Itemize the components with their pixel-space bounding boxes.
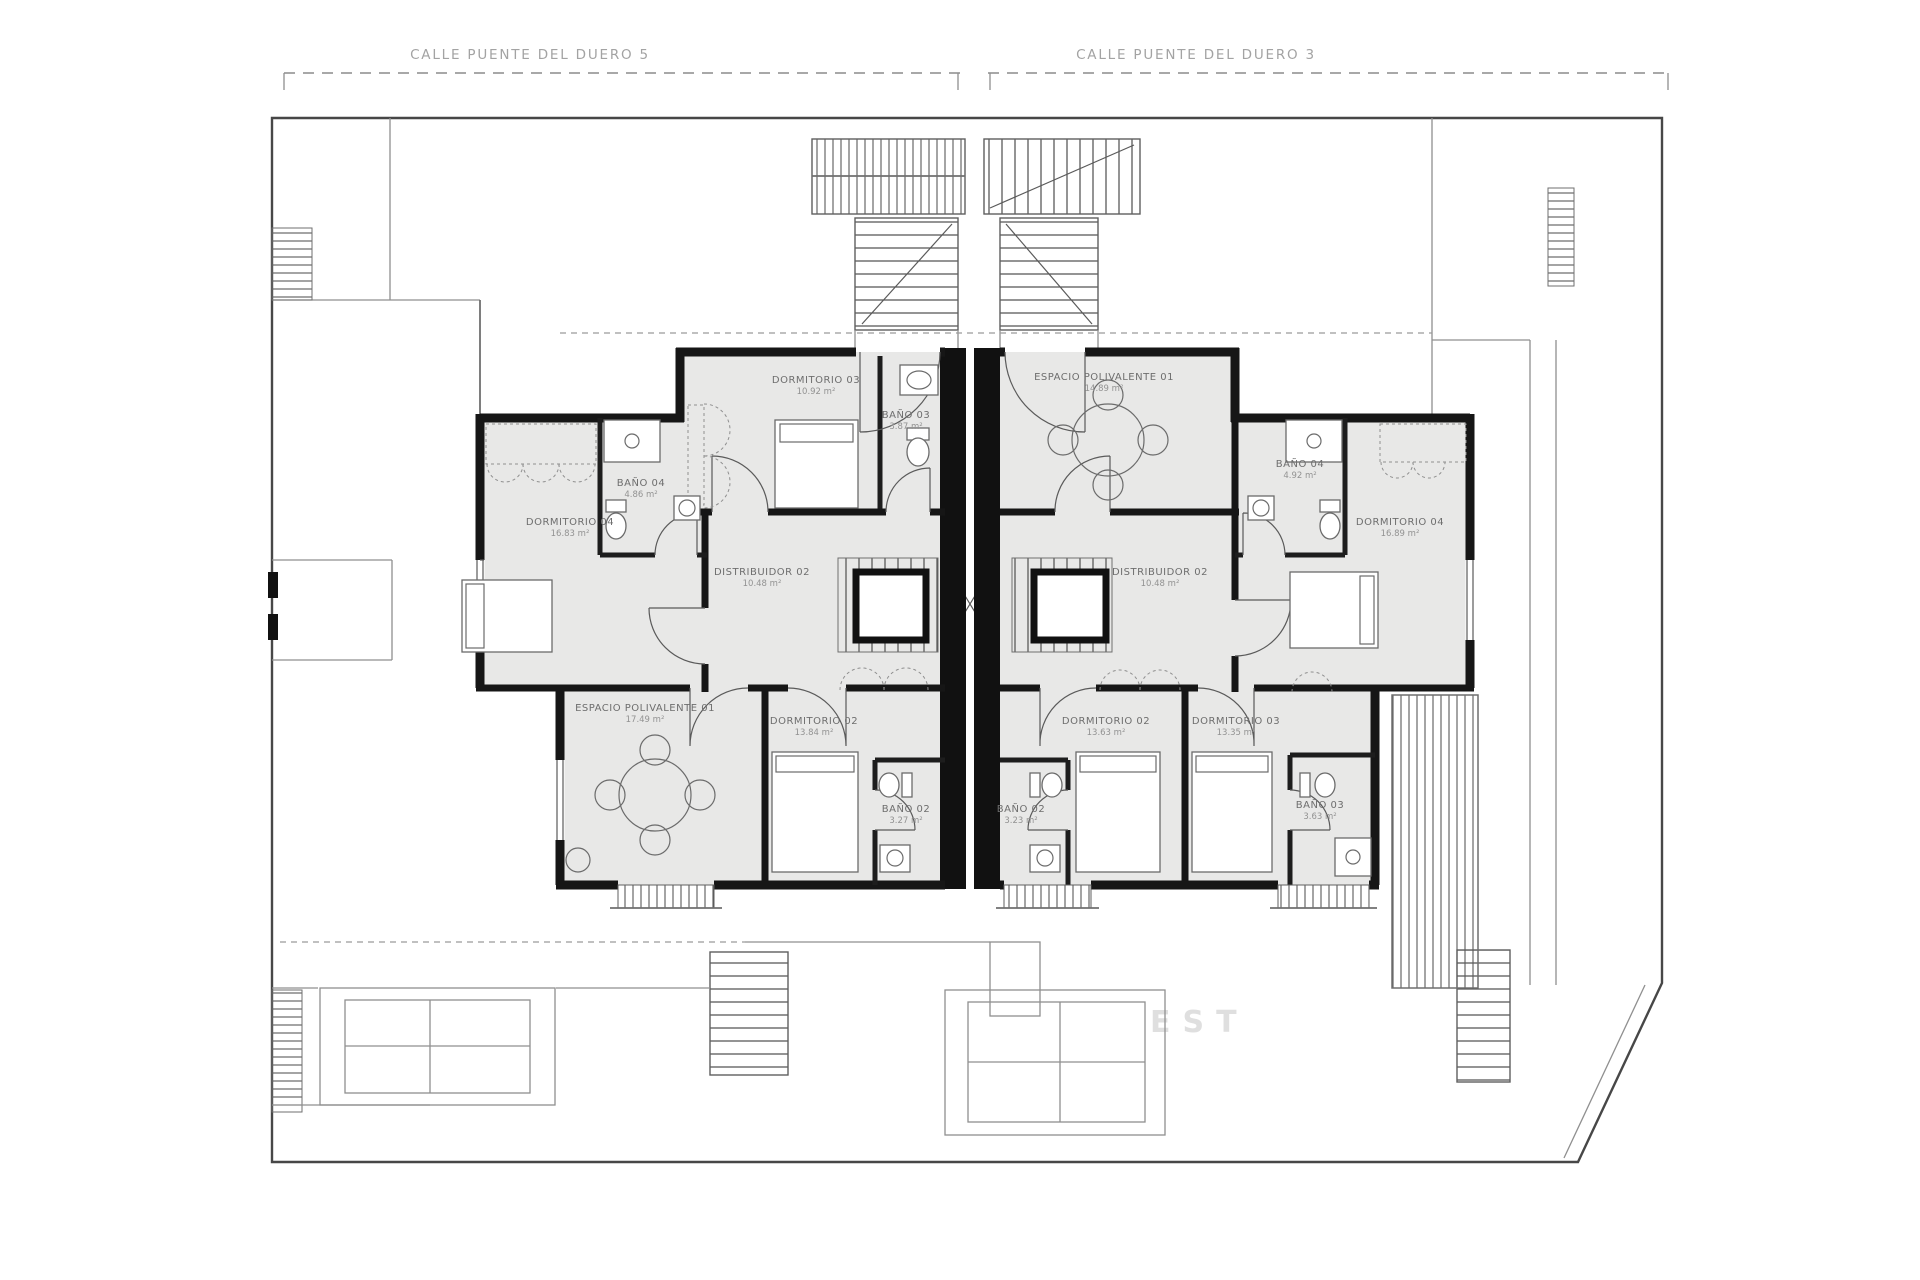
- room-label-dormitorio-04-left: DORMITORIO 04 16.83 m²: [526, 516, 614, 540]
- room-label-dormitorio-03-left: DORMITORIO 03 10.92 m²: [772, 374, 860, 398]
- room-label-espacio-polivalente-01-left: ESPACIO POLIVALENTE 01 17.49 m²: [575, 702, 715, 726]
- room-label-bano-04-left: BAÑO 04 4.86 m²: [617, 477, 665, 501]
- room-label-espacio-polivalente-01-right: ESPACIO POLIVALENTE 01 14.89 m²: [1034, 371, 1174, 395]
- floor-plan-page: CALLE PUENTE DEL DUERO 5 CALLE PUENTE DE…: [0, 0, 1920, 1280]
- property-boundary-lines: [284, 73, 1668, 90]
- room-label-distribuidor-02-left: DISTRIBUIDOR 02 10.48 m²: [714, 566, 810, 590]
- floor-plan-drawing: [0, 0, 1920, 1280]
- room-label-bano-02-right: BAÑO 02 3.23 m²: [997, 803, 1045, 827]
- street-label-left: CALLE PUENTE DEL DUERO 5: [410, 47, 650, 63]
- room-label-bano-04-right: BAÑO 04 4.92 m²: [1276, 458, 1324, 482]
- room-label-bano-02-left: BAÑO 02 3.27 m²: [882, 803, 930, 827]
- watermark-text: EST: [1150, 1005, 1249, 1040]
- room-label-dormitorio-03-right: DORMITORIO 03 13.35 m²: [1192, 715, 1280, 739]
- party-wall: [940, 348, 1000, 889]
- room-label-distribuidor-02-right: DISTRIBUIDOR 02 10.48 m²: [1112, 566, 1208, 590]
- room-label-bano-03-right: BAÑO 03 3.63 m²: [1296, 799, 1344, 823]
- room-label-dormitorio-02-left: DORMITORIO 02 13.84 m²: [770, 715, 858, 739]
- room-label-dormitorio-04-right: DORMITORIO 04 16.89 m²: [1356, 516, 1444, 540]
- street-label-right: CALLE PUENTE DEL DUERO 3: [1076, 47, 1316, 63]
- room-label-dormitorio-02-right: DORMITORIO 02 13.63 m²: [1062, 715, 1150, 739]
- room-label-bano-03-left: BAÑO 03 3.87 m²: [882, 409, 930, 433]
